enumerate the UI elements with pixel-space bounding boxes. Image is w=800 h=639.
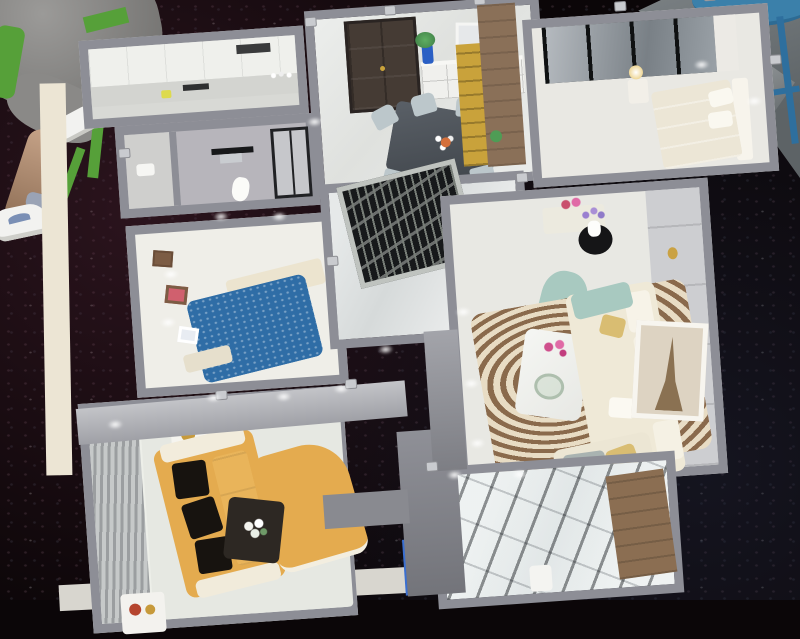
pillow (707, 110, 733, 129)
black-cushion (171, 459, 210, 499)
white-flowers (239, 514, 270, 543)
door-knob (380, 66, 385, 71)
bedside-table (627, 79, 649, 104)
eiffel-tower-motif (655, 336, 687, 411)
gold-decor (145, 604, 156, 615)
towel (220, 153, 243, 164)
bedside-lamp (628, 65, 643, 80)
wall-clip (118, 148, 131, 159)
wall-clip (703, 0, 716, 1)
wall-clip (384, 5, 397, 16)
kitchen (78, 25, 309, 128)
wall-clip (304, 17, 317, 28)
wardrobe-end-panel (713, 14, 739, 71)
wall-clip (516, 172, 529, 183)
apartment-model (50, 0, 800, 634)
counter-bottles (268, 69, 295, 81)
dark-coffee-table (223, 496, 285, 564)
shelf-frame (177, 326, 199, 345)
sink (136, 163, 155, 176)
purple-flowers (578, 204, 607, 224)
wall-clip (473, 0, 486, 5)
gold-pillow (598, 314, 626, 339)
wall-clip (426, 461, 439, 472)
bathroom (114, 113, 320, 219)
framed-art-eiffel (631, 320, 708, 422)
black-cushion (181, 495, 224, 540)
red-decor (129, 603, 142, 616)
balcony (429, 451, 684, 610)
glass-bowl (533, 372, 566, 402)
wall-clip (769, 54, 782, 65)
blue-bedroom (125, 212, 348, 398)
wall-clip (326, 256, 339, 267)
shelf-frame (152, 250, 173, 267)
shower-glass-mullion (289, 131, 295, 195)
model-outer-rim-left (40, 83, 73, 475)
shower-glass (270, 126, 313, 198)
yellow-utensil (161, 90, 172, 99)
wall-clip (614, 1, 627, 12)
downlight-glow (377, 344, 394, 355)
shelf-frame (164, 285, 188, 305)
wall-face-arm (323, 489, 410, 529)
balcony-fixture (529, 564, 553, 591)
pink-flowers (538, 336, 570, 360)
side-table-2 (120, 592, 167, 635)
master-bedroom (522, 3, 779, 188)
toilet (231, 176, 251, 202)
